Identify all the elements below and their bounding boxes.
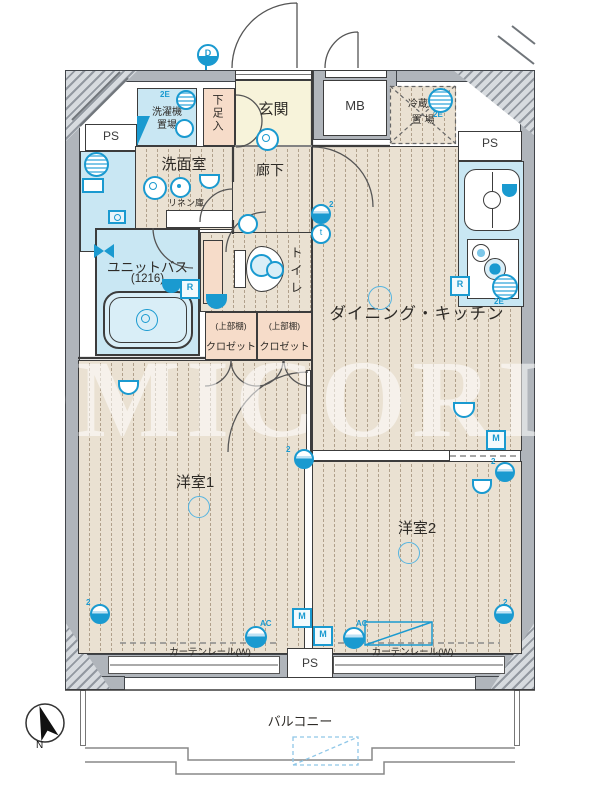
meter-box-sill bbox=[325, 70, 387, 78]
bedroom1-outlet-count-l: 2 bbox=[86, 598, 90, 607]
dining-kitchen-label: ダイニング・キッチン bbox=[312, 300, 522, 324]
hallway-label: 廊下 bbox=[256, 160, 284, 180]
dk-ceiling-light bbox=[368, 286, 392, 310]
bedroom1-outlet-count-r: 2 bbox=[286, 445, 290, 454]
linen-closet-label: リネン庫 bbox=[168, 196, 204, 209]
toilet-seat-icon bbox=[266, 261, 284, 279]
bedroom1-door-leaf bbox=[306, 370, 311, 452]
dk-outlet-count: 2 bbox=[329, 200, 333, 209]
ps-top-left-label: PS bbox=[85, 129, 137, 143]
m-letter: M bbox=[319, 629, 327, 639]
bedroom2-ceiling-light bbox=[398, 542, 420, 564]
washroom-fan-icon bbox=[143, 176, 167, 200]
kitchen-sink bbox=[464, 169, 520, 231]
bedroom1-ceiling-light bbox=[188, 496, 210, 518]
doorbell-icon: D bbox=[197, 44, 219, 66]
bedroom1-ac-tag: AC bbox=[260, 619, 272, 628]
toilet-label: トイレ bbox=[286, 246, 305, 299]
washroom-label: 洗面室 bbox=[135, 153, 233, 174]
dk-phone-icon: t bbox=[311, 224, 331, 244]
balcony-railing bbox=[85, 748, 515, 774]
bath-tv-icon bbox=[82, 178, 104, 193]
window-bedroom1 bbox=[108, 656, 280, 674]
entrance-label: 玄関 bbox=[235, 98, 312, 119]
r-letter: R bbox=[187, 282, 194, 292]
bedroom2-outlet-count-b: 2 bbox=[503, 598, 507, 607]
bathtub-drain-icon bbox=[136, 309, 158, 331]
m-letter: M bbox=[492, 433, 500, 443]
washroom-outlet-icon bbox=[170, 177, 191, 198]
partition-wall-dk-bedroom2 bbox=[312, 450, 450, 461]
bedroom2-outlet-count-t: 2 bbox=[491, 457, 495, 466]
bedroom1-label: 洋室1 bbox=[78, 471, 312, 492]
bedroom1-m-box-1: M bbox=[292, 608, 312, 628]
closet2-shelf-note: (上部棚) bbox=[257, 320, 312, 332]
window-bedroom2 bbox=[333, 656, 505, 674]
bedroom2-outlet-bottom bbox=[494, 604, 514, 624]
bedroom1-ac-outlet bbox=[245, 626, 267, 648]
compass-arrow bbox=[31, 703, 59, 741]
bath-control-icon bbox=[108, 210, 126, 224]
floor-plan: OMICORI 玄関 下足入 洗濯機 置場 MB 冷蔵庫 置 場 PS PS 洗… bbox=[0, 0, 600, 800]
toilet-tank bbox=[234, 250, 246, 288]
balcony-ac-pad bbox=[293, 737, 358, 765]
laundry-vent-icon bbox=[176, 90, 196, 110]
bedroom2-ac-tag: AC bbox=[356, 619, 368, 628]
doorbell-letter: D bbox=[205, 48, 212, 58]
bedroom1-outlet-right bbox=[294, 449, 314, 469]
shoe-box-label: 下足入 bbox=[209, 94, 225, 133]
closet1-shelf-note: (上部棚) bbox=[205, 320, 257, 332]
ps-top-right-label: PS bbox=[458, 136, 522, 150]
bedroom1-outlet-left bbox=[90, 604, 110, 624]
dk-2e-tag: 2E bbox=[494, 297, 504, 306]
m-letter: M bbox=[298, 611, 306, 621]
meter-box-label: MB bbox=[323, 98, 387, 113]
intercom-icon bbox=[256, 128, 279, 151]
bedroom2-outlet-top bbox=[495, 462, 515, 482]
bedroom2-label: 洋室2 bbox=[312, 517, 522, 538]
r-letter: R bbox=[457, 279, 464, 289]
phone-letter: t bbox=[320, 227, 323, 237]
compass-north-label: N bbox=[36, 740, 43, 751]
hallway-light-icon bbox=[238, 214, 258, 234]
dk-r-box: R bbox=[450, 276, 470, 296]
entrance-door-sill bbox=[235, 70, 312, 80]
ps-bottom-label: PS bbox=[287, 656, 333, 670]
linen-shelf bbox=[166, 210, 233, 228]
bedroom2-ac-outlet bbox=[343, 627, 365, 649]
bedroom1-m-box-2: M bbox=[313, 626, 333, 646]
fridge-2e-tag: 2E bbox=[433, 110, 443, 119]
compass bbox=[26, 703, 64, 742]
closet2-label: クロゼット bbox=[257, 338, 312, 353]
fridge-label-2: 置 場 bbox=[390, 111, 456, 126]
dk-outlet-icon bbox=[311, 204, 331, 224]
bath-r-box: R bbox=[180, 279, 200, 299]
balcony-label: バルコニー bbox=[80, 711, 520, 730]
closet1-label: クロゼット bbox=[205, 338, 257, 353]
dk-m-box: M bbox=[486, 430, 506, 450]
bath-vent-icon bbox=[84, 152, 109, 177]
laundry-2e-tag: 2E bbox=[160, 90, 170, 99]
curtain-rail-label-2: カーテンレール(W) bbox=[345, 644, 480, 658]
laundry-outlet-icon bbox=[175, 119, 194, 138]
